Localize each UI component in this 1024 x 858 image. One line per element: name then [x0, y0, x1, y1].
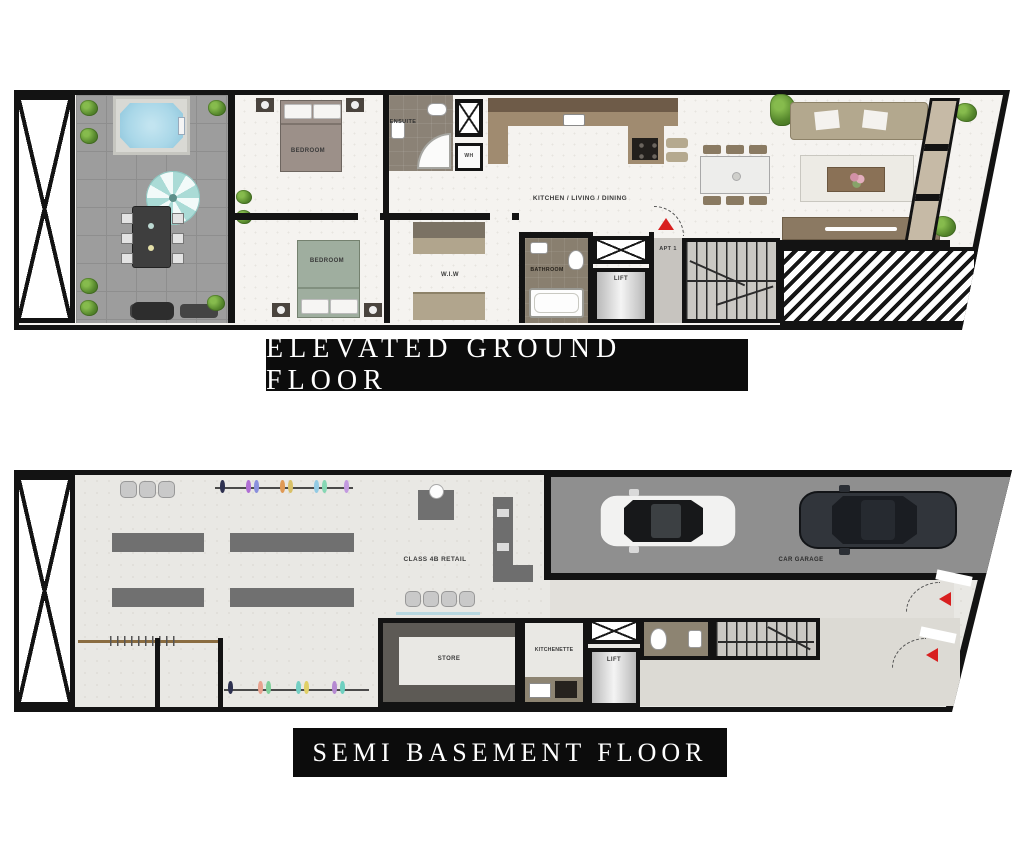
- sofa: [790, 102, 928, 140]
- room-label-bedroom2: BEDROOM: [287, 258, 367, 266]
- plant-icon: [80, 278, 98, 294]
- plant-icon: [236, 190, 252, 204]
- toilet-icon: [650, 628, 667, 650]
- floor-plan-sheet: BEDROOM ENSUITE WH KITCHEN / LIVING / DI…: [0, 0, 1024, 858]
- dining-chair: [726, 196, 744, 205]
- wc-room: [640, 618, 712, 660]
- bed-fold: [298, 287, 359, 289]
- void-shaft-left: [14, 95, 75, 323]
- room-label-bedroom1: BEDROOM: [268, 148, 348, 156]
- clothes-icon: [246, 480, 251, 493]
- bar-stool: [666, 138, 688, 148]
- clothes-icon: [322, 480, 327, 493]
- clothes-icon: [280, 480, 285, 493]
- staircase: [712, 618, 820, 660]
- duct-shaft: [455, 99, 483, 137]
- bar-stool: [666, 152, 688, 162]
- bed: [280, 100, 342, 172]
- mannequin-icon: [429, 484, 444, 499]
- car-icon-white: [597, 485, 739, 557]
- bed-fold: [281, 123, 341, 125]
- bed-pillow: [301, 299, 329, 314]
- basement-floor-plan: CAR GARAGE: [14, 470, 1012, 712]
- seat: [459, 591, 475, 607]
- door-opening: [490, 213, 512, 220]
- outdoor-chair: [121, 213, 133, 224]
- sofa-cushion: [862, 110, 888, 131]
- outdoor-chair: [172, 233, 184, 244]
- dining-chair: [703, 196, 721, 205]
- stove-icon: [555, 681, 577, 698]
- outdoor-chair: [121, 253, 133, 264]
- bathtub: [529, 288, 584, 318]
- bathtub-inner: [534, 293, 579, 313]
- bathroom-room: [525, 238, 588, 323]
- clothes-icon: [332, 681, 337, 694]
- dining-chair: [749, 196, 767, 205]
- corridor-floor: [550, 580, 954, 618]
- tv-icon: [825, 227, 897, 231]
- waiting-seats: [120, 481, 177, 503]
- shelf: [383, 685, 515, 702]
- room-label-lift: LIFT: [597, 276, 645, 284]
- stair-landing: [686, 280, 776, 282]
- room-label-wh: WH: [458, 153, 480, 159]
- clothes-icon: [304, 681, 309, 694]
- plant-icon: [80, 100, 98, 116]
- room-label-lift: LIFT: [592, 657, 636, 665]
- clothes-icon: [344, 480, 349, 493]
- dining-chair: [703, 145, 721, 154]
- dining-table: [700, 156, 770, 194]
- lift-shaft: [593, 236, 649, 264]
- door-opening: [358, 213, 380, 220]
- kitchen-wall-cabinet: [488, 98, 678, 112]
- basement-floor-title-banner: SEMI BASEMENT FLOOR: [293, 728, 727, 777]
- seat: [120, 481, 137, 498]
- wall: [218, 638, 223, 707]
- room-label-retail: CLASS 4B RETAIL: [375, 556, 495, 564]
- pool-water: [120, 103, 183, 148]
- nightstand: [272, 303, 290, 317]
- plant-icon: [80, 300, 98, 316]
- stair-line: [768, 626, 811, 650]
- car-icon-dark: [797, 483, 959, 557]
- clothes-icon: [314, 480, 319, 493]
- waiting-seats: [405, 591, 477, 612]
- sofa-cushion: [814, 110, 840, 130]
- display-pedestal: [418, 490, 454, 520]
- room-label-store: STORE: [401, 656, 497, 664]
- outdoor-chair: [172, 213, 184, 224]
- clothes-icon: [296, 681, 301, 694]
- store-room: STORE: [378, 618, 520, 707]
- coffee-table: [827, 167, 885, 192]
- seat: [139, 481, 156, 498]
- sink-icon: [530, 242, 548, 254]
- outdoor-chair: [172, 253, 184, 264]
- display-table: [230, 533, 354, 552]
- garage-floor: CAR GARAGE: [551, 477, 1015, 573]
- clothes-icon: [228, 681, 233, 694]
- shelf: [383, 637, 399, 685]
- basement-floor-title: SEMI BASEMENT FLOOR: [312, 738, 707, 768]
- bed-pillow: [313, 104, 341, 119]
- entry-arrow-icon: [926, 648, 938, 662]
- lift-cab: LIFT: [588, 648, 640, 707]
- clothes-icon: [340, 681, 345, 694]
- plant-icon: [208, 100, 226, 116]
- ground-floor-plan: BEDROOM ENSUITE WH KITCHEN / LIVING / DI…: [14, 90, 1010, 330]
- clothes-icon: [288, 480, 293, 493]
- seat: [441, 591, 457, 607]
- entry-arrow-icon: [658, 218, 674, 230]
- dining-chair: [726, 145, 744, 154]
- entry-arrow-icon: [939, 592, 951, 606]
- seat: [405, 591, 421, 607]
- room-label-bathroom: BATHROOM: [512, 267, 582, 274]
- wall: [776, 240, 950, 247]
- lamp-icon: [351, 101, 359, 109]
- hatched-void: [780, 247, 978, 325]
- outdoor-table: [133, 207, 170, 267]
- bbq-icon: [132, 302, 174, 320]
- wall: [155, 638, 160, 707]
- dining-chair: [749, 145, 767, 154]
- kitchen-counter: [488, 126, 508, 164]
- display-table: [112, 533, 204, 552]
- shower: [417, 133, 451, 169]
- wardrobe: [413, 292, 485, 320]
- stair-line: [716, 285, 774, 305]
- parasol-pole: [169, 194, 177, 202]
- bed: [297, 240, 360, 318]
- sink-icon: [688, 630, 702, 648]
- wardrobe: [413, 238, 485, 254]
- lamp-icon: [369, 306, 377, 314]
- table-decor: [732, 172, 741, 181]
- room-label-kitchenette: KITCHENETTE: [525, 647, 583, 654]
- seat: [158, 481, 175, 498]
- hanger-ticks: [110, 636, 180, 646]
- nightstand: [364, 303, 382, 317]
- lift-shaft: [588, 618, 640, 644]
- pool: [113, 96, 190, 155]
- display-table: [230, 588, 354, 607]
- shop-counter: [493, 565, 533, 582]
- pool-ladder-icon: [178, 117, 185, 135]
- wall: [228, 95, 235, 323]
- clothes-icon: [266, 681, 271, 694]
- nightstand: [256, 98, 274, 112]
- kitchen-sink-icon: [563, 114, 585, 126]
- toilet-icon: [427, 103, 447, 116]
- lift-cab: LIFT: [593, 268, 649, 323]
- clothes-icon: [220, 480, 225, 493]
- ground-floor-title: ELEVATED GROUND FLOOR: [266, 333, 748, 397]
- bed-pillow: [284, 104, 312, 119]
- stove-icon: [632, 138, 658, 160]
- ensuite-room: [389, 95, 453, 171]
- plant-icon: [80, 128, 98, 144]
- bench: [396, 612, 480, 615]
- wardrobe: [413, 222, 485, 238]
- bed-pillow: [330, 299, 358, 314]
- register-icon: [497, 543, 509, 551]
- water-heater: WH: [455, 143, 483, 171]
- car-garage: CAR GARAGE: [544, 470, 1022, 580]
- table-decor: [148, 245, 154, 251]
- register-icon: [497, 509, 509, 517]
- kitchenette-room: KITCHENETTE: [520, 618, 588, 707]
- lamp-icon: [277, 306, 285, 314]
- room-label-wiw: W.I.W: [410, 272, 490, 280]
- ground-floor-title-banner: ELEVATED GROUND FLOOR: [266, 339, 748, 391]
- shelf: [383, 623, 515, 637]
- wall: [384, 220, 390, 323]
- table-decor: [148, 223, 154, 229]
- clothes-icon: [254, 480, 259, 493]
- room-label-garage: CAR GARAGE: [741, 557, 861, 565]
- room-label-kitchen: KITCHEN / LIVING / DINING: [490, 195, 670, 203]
- nightstand: [346, 98, 364, 112]
- sink-icon: [529, 683, 551, 698]
- room-label-ensuite: ENSUITE: [371, 119, 435, 126]
- lamp-icon: [261, 101, 269, 109]
- seat: [423, 591, 439, 607]
- clothes-icon: [258, 681, 263, 694]
- display-table: [112, 588, 204, 607]
- outdoor-chair: [121, 233, 133, 244]
- void-shaft-left: [14, 475, 75, 707]
- plant-icon: [207, 295, 225, 311]
- flower-vase-icon: [848, 171, 866, 189]
- staircase: [682, 238, 780, 323]
